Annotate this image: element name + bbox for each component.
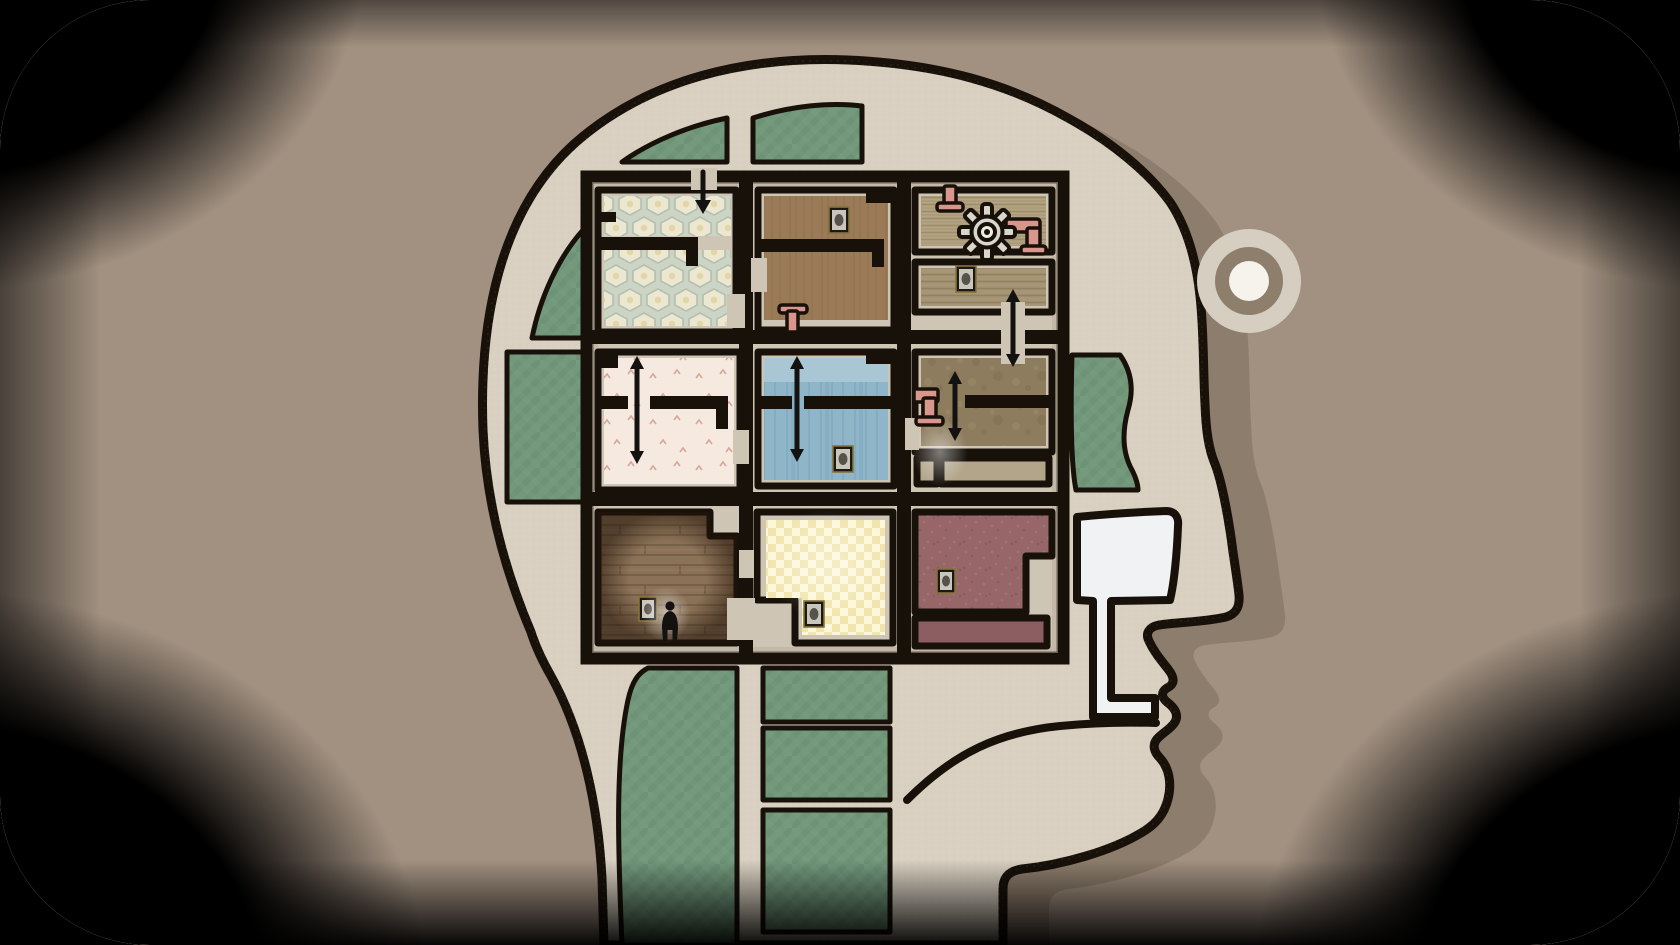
- room-grid: [587, 168, 1063, 658]
- green-rect-top: [753, 105, 862, 163]
- person-silhouette[interactable]: [642, 586, 690, 642]
- head-map-canvas: [0, 0, 1680, 945]
- room-blinds[interactable]: [915, 262, 1052, 312]
- room-floral[interactable]: [598, 352, 740, 490]
- green-chin-panel-3: [763, 810, 890, 932]
- green-chin-panel-1: [763, 668, 890, 722]
- framed-picture[interactable]: [804, 601, 824, 627]
- framed-picture[interactable]: [956, 266, 976, 292]
- green-rect-left: [507, 352, 583, 502]
- white-glow: [766, 509, 890, 621]
- framed-picture[interactable]: [937, 569, 955, 593]
- framed-picture[interactable]: [833, 446, 853, 472]
- room-blue[interactable]: [758, 352, 894, 486]
- gear-icon[interactable]: [959, 204, 1015, 260]
- divider-wall: [897, 177, 911, 658]
- framed-picture[interactable]: [829, 207, 849, 233]
- divider-wall: [587, 492, 1063, 506]
- green-neck-panel: [619, 668, 737, 945]
- map-scene: [0, 0, 1680, 945]
- room-hexagon[interactable]: [598, 190, 736, 332]
- earring-circle-icon[interactable]: [1197, 229, 1301, 333]
- green-chin-panel-2: [763, 728, 890, 800]
- game-viewport: [0, 0, 1680, 945]
